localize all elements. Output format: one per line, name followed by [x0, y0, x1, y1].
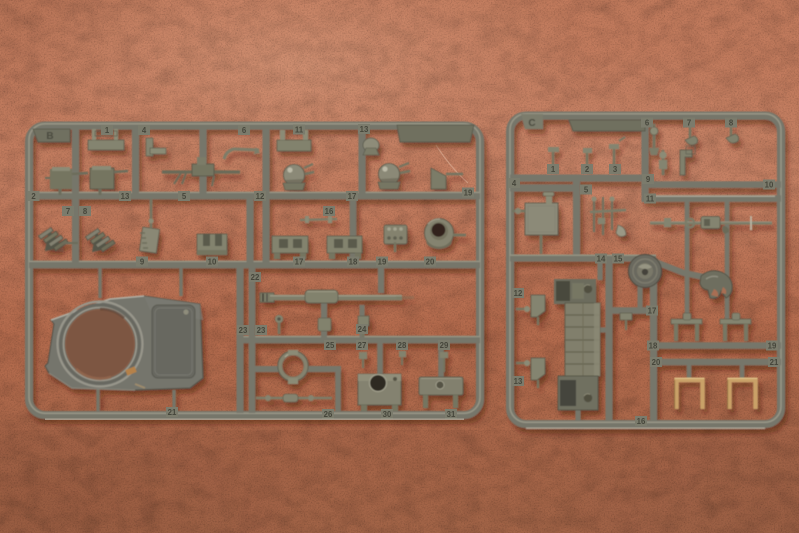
- svg-text:2: 2: [31, 192, 36, 201]
- svg-text:21: 21: [770, 358, 779, 367]
- svg-text:23: 23: [239, 326, 248, 335]
- svg-text:5: 5: [182, 192, 187, 201]
- svg-text:13: 13: [514, 377, 523, 386]
- svg-text:23: 23: [257, 326, 266, 335]
- svg-text:13: 13: [121, 192, 130, 201]
- svg-text:14: 14: [597, 255, 606, 264]
- svg-text:6: 6: [242, 126, 247, 135]
- svg-text:12: 12: [514, 289, 523, 298]
- svg-text:B: B: [46, 131, 53, 142]
- svg-text:21: 21: [168, 408, 177, 417]
- svg-text:17: 17: [348, 192, 357, 201]
- svg-text:15: 15: [614, 255, 623, 264]
- svg-text:10: 10: [208, 258, 217, 267]
- svg-text:25: 25: [326, 341, 335, 350]
- svg-text:19: 19: [378, 258, 387, 267]
- svg-text:3: 3: [613, 165, 618, 174]
- svg-text:18: 18: [349, 258, 358, 267]
- svg-text:18: 18: [649, 342, 658, 351]
- svg-text:19: 19: [464, 189, 473, 198]
- svg-text:24: 24: [358, 325, 367, 334]
- svg-text:30: 30: [383, 410, 392, 419]
- svg-text:13: 13: [360, 125, 369, 134]
- svg-text:6: 6: [645, 119, 650, 128]
- svg-text:16: 16: [325, 207, 334, 216]
- svg-text:22: 22: [251, 273, 260, 282]
- svg-text:16: 16: [637, 417, 646, 426]
- svg-text:9: 9: [140, 258, 145, 267]
- svg-text:20: 20: [652, 358, 661, 367]
- svg-text:29: 29: [440, 341, 449, 350]
- svg-text:8: 8: [729, 119, 734, 128]
- svg-text:27: 27: [358, 341, 367, 350]
- svg-text:7: 7: [66, 207, 70, 216]
- svg-text:1: 1: [551, 165, 556, 174]
- svg-text:9: 9: [646, 175, 651, 184]
- svg-text:10: 10: [765, 181, 774, 190]
- svg-text:11: 11: [295, 126, 304, 135]
- svg-text:5: 5: [584, 186, 589, 195]
- svg-text:4: 4: [512, 179, 517, 188]
- svg-text:17: 17: [295, 258, 304, 267]
- svg-text:17: 17: [648, 307, 657, 316]
- svg-text:C: C: [528, 118, 535, 129]
- svg-text:8: 8: [83, 207, 88, 216]
- svg-text:11: 11: [646, 195, 655, 204]
- svg-text:7: 7: [687, 119, 691, 128]
- svg-text:4: 4: [142, 126, 147, 135]
- svg-text:28: 28: [398, 341, 407, 350]
- svg-text:26: 26: [324, 410, 333, 419]
- svg-text:1: 1: [105, 126, 110, 135]
- svg-text:20: 20: [426, 258, 435, 267]
- svg-text:12: 12: [256, 192, 265, 201]
- svg-text:19: 19: [768, 342, 777, 351]
- svg-text:2: 2: [585, 165, 590, 174]
- svg-text:31: 31: [447, 410, 456, 419]
